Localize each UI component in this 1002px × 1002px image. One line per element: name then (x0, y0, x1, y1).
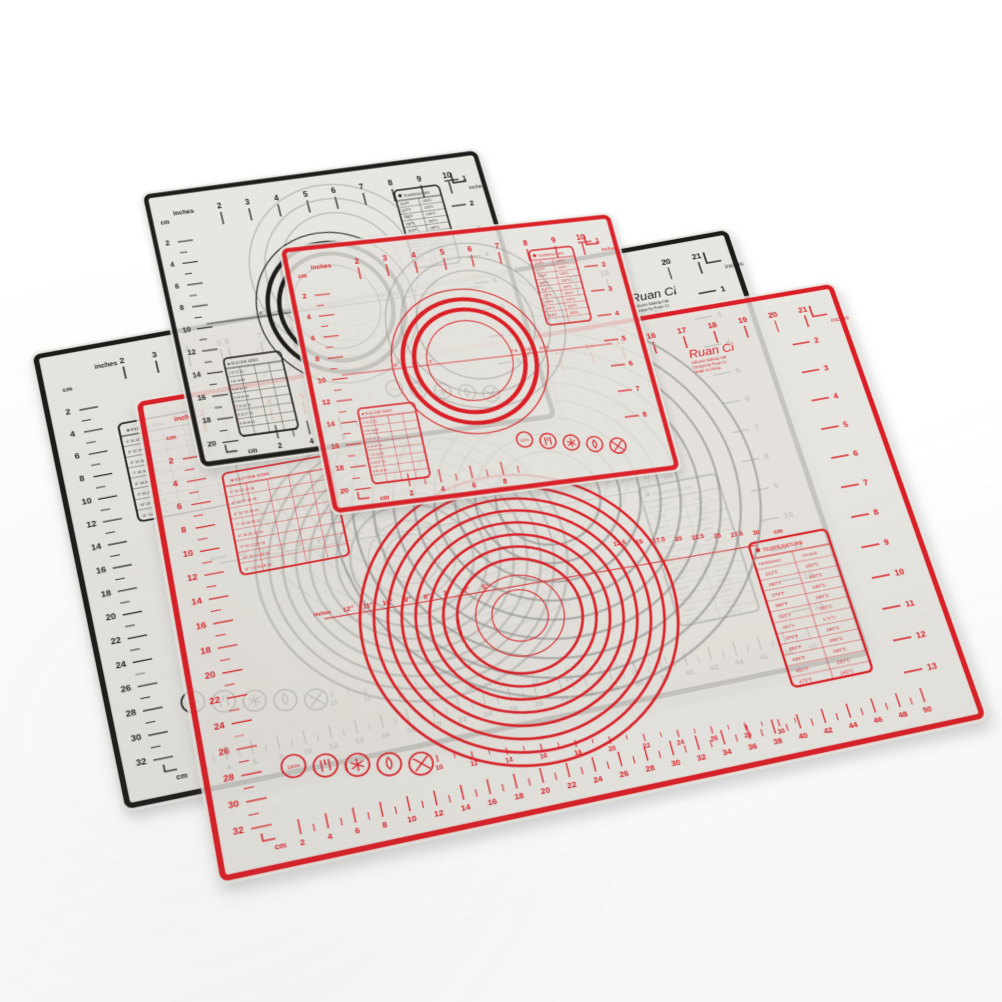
svg-text:10: 10 (317, 377, 327, 385)
svg-text:cm: cm (380, 495, 390, 503)
svg-text:18: 18 (513, 791, 524, 802)
svg-text:20: 20 (339, 487, 349, 495)
svg-text:12: 12 (186, 572, 199, 583)
svg-text:18: 18 (335, 465, 345, 473)
svg-text:16: 16 (487, 797, 498, 808)
svg-text:16: 16 (330, 443, 340, 451)
svg-text:cm: cm (160, 220, 170, 227)
svg-text:26: 26 (618, 769, 629, 780)
svg-text:7″: 7″ (443, 590, 451, 597)
svg-text:20: 20 (207, 440, 217, 449)
svg-text:10: 10 (182, 548, 194, 559)
svg-text:24: 24 (592, 775, 603, 786)
svg-text:9″: 9″ (404, 597, 412, 604)
svg-text:8″: 8″ (423, 594, 431, 601)
svg-text:5″: 5″ (482, 584, 490, 591)
svg-text:18: 18 (202, 417, 212, 426)
svg-text:28: 28 (644, 763, 655, 774)
svg-text:20: 20 (540, 786, 551, 797)
svg-text:10: 10 (182, 327, 192, 335)
svg-text:cm: cm (248, 448, 259, 456)
svg-text:16: 16 (197, 394, 207, 403)
svg-text:12: 12 (433, 808, 444, 819)
svg-text:12: 12 (187, 349, 197, 357)
svg-text:10: 10 (406, 814, 417, 825)
svg-text:22: 22 (566, 780, 577, 791)
svg-text:14: 14 (192, 371, 202, 380)
svg-text:12: 12 (321, 399, 331, 407)
svg-text:30: 30 (777, 728, 786, 736)
svg-text:22: 22 (642, 743, 651, 751)
svg-text:6″: 6″ (462, 587, 470, 594)
svg-text:12.5: 12.5 (539, 344, 550, 350)
svg-text:14: 14 (460, 803, 471, 814)
svg-text:cm: cm (298, 274, 308, 281)
svg-text:14: 14 (326, 421, 336, 429)
